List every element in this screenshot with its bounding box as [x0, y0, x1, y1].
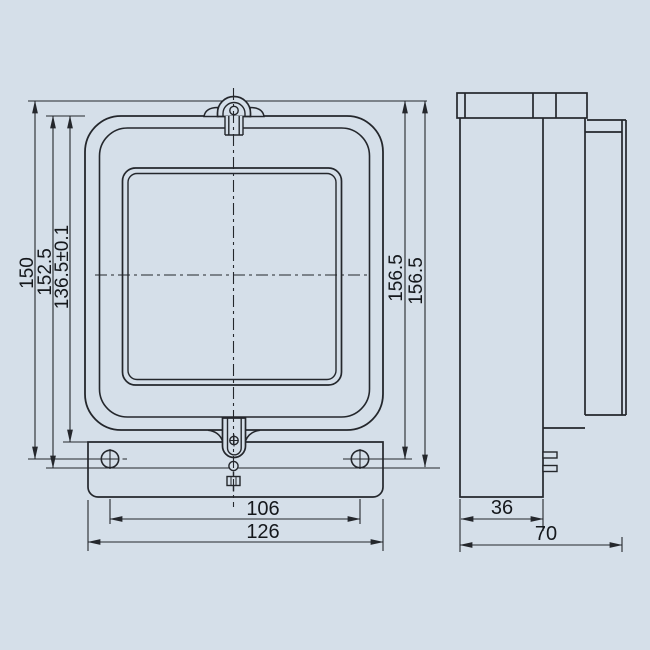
dim-label-156-5-b: 156.5 [406, 257, 427, 305]
side-cover-profile [460, 118, 543, 497]
meter-case-inner-edge [100, 128, 370, 417]
hook-wing-left [204, 108, 218, 117]
dimension-drawing: 150 152.5 136.5±0.1 156.5 156.5 106 126 … [0, 0, 650, 650]
dim-label-126: 126 [246, 521, 279, 543]
side-view [457, 93, 626, 497]
drawing-canvas: 150 152.5 136.5±0.1 156.5 156.5 106 126 … [0, 0, 650, 650]
viewing-window-inner [128, 174, 336, 380]
terminal-tab-upper [543, 452, 557, 458]
hook-wing-right [250, 108, 264, 117]
dim-label-136-5: 136.5±0.1 [52, 225, 73, 309]
terminal-tab-lower [543, 466, 557, 472]
side-top-cap [457, 93, 587, 118]
side-base-profile [543, 118, 585, 428]
dim-label-70: 70 [535, 523, 557, 545]
dim-label-36: 36 [491, 497, 513, 519]
side-mounting-plate [585, 120, 626, 415]
side-top-cap-segments [465, 93, 556, 118]
viewing-window [123, 168, 342, 385]
dim-label-106: 106 [246, 498, 279, 520]
dim-label-156-5-a: 156.5 [386, 254, 407, 302]
